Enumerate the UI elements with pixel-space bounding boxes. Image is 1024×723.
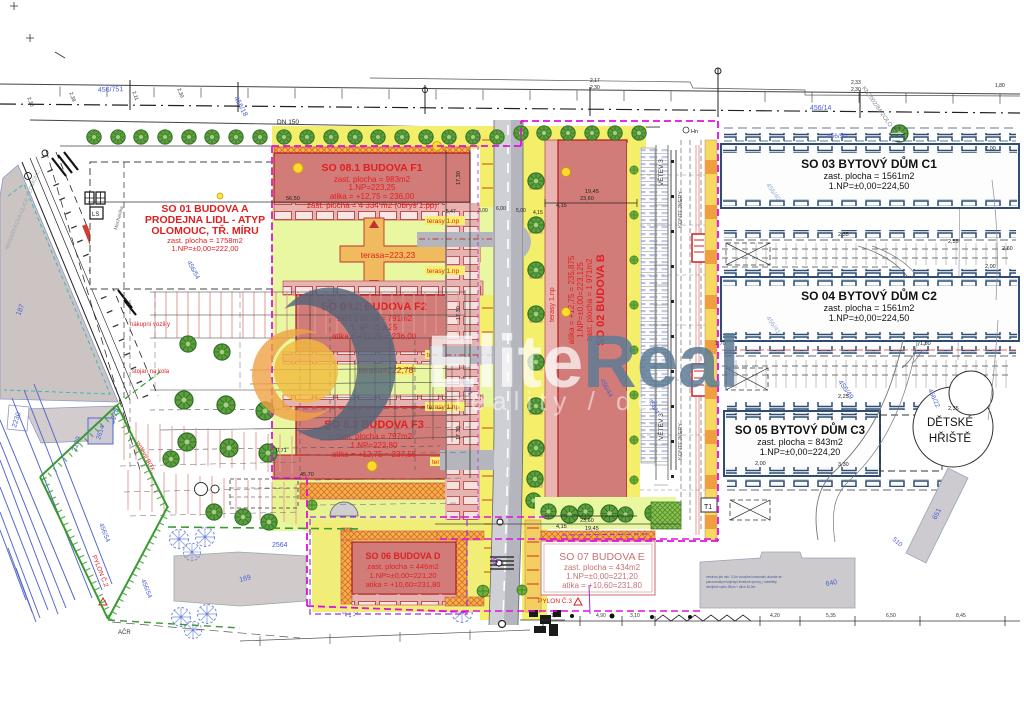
- svg-text:5,00: 5,00: [516, 208, 526, 214]
- svg-text:Hn: Hn: [691, 129, 698, 135]
- svg-text:atika = +10,60=231,80: atika = +10,60=231,80: [562, 581, 642, 590]
- svg-text:4,15: 4,15: [556, 203, 567, 209]
- svg-text:19,45: 19,45: [585, 189, 599, 195]
- svg-text:devijnich vplku 35cm + dilce 3: devijnich vplku 35cm + dilce 35,0m: [706, 585, 756, 589]
- svg-text:vetsinou jde min. 3,2m vizualn: vetsinou jde min. 3,2m vizualne komunaln…: [706, 575, 782, 579]
- svg-text:DĚTSKÉ: DĚTSKÉ: [927, 416, 973, 429]
- svg-text:SO 08.1 BUDOVA F1: SO 08.1 BUDOVA F1: [322, 162, 423, 174]
- svg-text:zast. plocha = 843m2: zast. plocha = 843m2: [757, 437, 843, 447]
- svg-text:SO 04 BYTOVÝ DŮM C2: SO 04 BYTOVÝ DŮM C2: [801, 287, 937, 303]
- svg-text:2,00: 2,00: [985, 264, 996, 270]
- svg-text:8,45: 8,45: [956, 613, 966, 619]
- svg-text:456/751: 456/751: [98, 86, 124, 94]
- svg-text:17,30: 17,30: [456, 306, 462, 320]
- svg-text:2564: 2564: [272, 542, 288, 549]
- svg-text:5,35: 5,35: [826, 613, 836, 619]
- svg-text:zast. plocha = 1561m2: zast. plocha = 1561m2: [824, 171, 915, 181]
- svg-text:panoramatym knjizlapi timetove: panoramatym knjizlapi timetove sprovy j.…: [706, 580, 777, 584]
- svg-text:terasy 1.np: terasy 1.np: [549, 287, 556, 322]
- svg-text:3,30: 3,30: [838, 462, 849, 468]
- svg-text:6,00: 6,00: [496, 206, 506, 212]
- svg-text:2,55: 2,55: [948, 239, 959, 245]
- svg-text:2,60: 2,60: [1002, 246, 1013, 252]
- svg-text:KONTEJNERY: KONTEJNERY: [678, 423, 684, 460]
- svg-text:4,15: 4,15: [556, 524, 567, 530]
- svg-text:1,80: 1,80: [995, 83, 1005, 89]
- svg-text:1.NP=223,25: 1.NP=223,25: [349, 183, 396, 192]
- svg-text:terasa=223,23: terasa=223,23: [361, 250, 416, 260]
- svg-text:1,80: 1,80: [920, 341, 931, 347]
- svg-text:PYLON Č.3: PYLON Č.3: [538, 596, 572, 605]
- svg-text:zast. plocha = 446m2: zast. plocha = 446m2: [367, 562, 439, 571]
- svg-text:T1: T1: [704, 504, 712, 511]
- svg-text:nákupní vozíky: nákupní vozíky: [130, 322, 170, 328]
- svg-text:atika = +10,60=231,80: atika = +10,60=231,80: [366, 580, 441, 589]
- svg-text:2,35: 2,35: [838, 232, 849, 238]
- svg-text:2,33: 2,33: [851, 80, 861, 86]
- svg-text:1.NP=±0,00=221,20: 1.NP=±0,00=221,20: [566, 572, 638, 581]
- svg-text:2,30: 2,30: [590, 85, 600, 91]
- svg-text:4,15: 4,15: [533, 210, 543, 216]
- svg-text:HŘIŠTĚ: HŘIŠTĚ: [929, 432, 972, 445]
- svg-text:VĚTEV 3: VĚTEV 3: [656, 159, 665, 186]
- svg-text:2,25: 2,25: [838, 394, 849, 400]
- svg-text:1.NP=222,80: 1.NP=222,80: [351, 441, 398, 450]
- svg-text:4,20: 4,20: [770, 613, 780, 619]
- svg-text:SO 05 BYTOVÝ DŮM C3: SO 05 BYTOVÝ DŮM C3: [735, 423, 865, 437]
- svg-text:zast. plocha = 434m2: zast. plocha = 434m2: [564, 563, 641, 572]
- svg-text:KONTEJNERY: KONTEJNERY: [678, 191, 684, 228]
- svg-text:LS: LS: [92, 212, 99, 218]
- svg-text:23,60: 23,60: [580, 518, 594, 524]
- svg-text:56,50: 56,50: [286, 196, 300, 202]
- svg-text:SO 06 BUDOVA D: SO 06 BUDOVA D: [365, 551, 441, 561]
- svg-text:terasy 1.np: terasy 1.np: [427, 218, 460, 225]
- svg-text:5,47: 5,47: [446, 209, 456, 215]
- svg-text:4,90: 4,90: [596, 613, 606, 619]
- svg-text:VĚTEV 3: VĚTEV 3: [656, 413, 665, 440]
- svg-text:0,71: 0,71: [276, 448, 287, 454]
- svg-text:1.NP=±0,00=221,20: 1.NP=±0,00=221,20: [369, 571, 436, 580]
- svg-text:stojan na kola: stojan na kola: [132, 369, 170, 375]
- svg-text:19,45: 19,45: [585, 526, 599, 532]
- svg-text:zast. plocha = 1561m2: zast. plocha = 1561m2: [824, 303, 915, 313]
- svg-text:2,00: 2,00: [985, 146, 996, 152]
- svg-text:45,70: 45,70: [300, 472, 314, 478]
- svg-text:3,00: 3,00: [478, 208, 488, 214]
- svg-text:SO 03 BYTOVÝ DŮM C1: SO 03 BYTOVÝ DŮM C1: [801, 155, 937, 171]
- svg-text:17,30: 17,30: [456, 171, 462, 185]
- svg-text:atika = +12,75 = 236,00: atika = +12,75 = 236,00: [330, 192, 415, 201]
- svg-text:17,30: 17,30: [456, 426, 462, 440]
- svg-text:1.NP=±0,00=222,00: 1.NP=±0,00=222,00: [171, 244, 238, 253]
- svg-text:terasy 1.np: terasy 1.np: [427, 268, 460, 275]
- svg-text:SO 07 BUDOVA E: SO 07 BUDOVA E: [559, 551, 645, 563]
- svg-text:1.NP=±0,00=224,50: 1.NP=±0,00=224,50: [829, 313, 910, 323]
- svg-text:DN 150: DN 150: [277, 119, 299, 126]
- svg-text:1.NP=±0,00=224,20: 1.NP=±0,00=224,20: [760, 447, 841, 457]
- svg-text:AČR: AČR: [118, 629, 131, 636]
- svg-text:23,60: 23,60: [580, 196, 594, 202]
- svg-text:2,00: 2,00: [755, 461, 766, 467]
- svg-text:2,30: 2,30: [851, 87, 861, 93]
- svg-text:zast. plocha = 4 334 m2 (obrys: zast. plocha = 4 334 m2 (obrys 1.pp): [307, 201, 437, 210]
- svg-text:1.NP=±0,00=224,50: 1.NP=±0,00=224,50: [829, 181, 910, 191]
- svg-text:456/14: 456/14: [810, 105, 832, 112]
- svg-text:6,50: 6,50: [886, 613, 896, 619]
- svg-text:2,35: 2,35: [948, 406, 959, 412]
- svg-text:reality / de: reality / de: [455, 386, 659, 416]
- svg-text:2,17: 2,17: [590, 78, 600, 84]
- svg-text:456/50: 456/50: [827, 133, 847, 140]
- svg-text:3,10: 3,10: [630, 613, 640, 619]
